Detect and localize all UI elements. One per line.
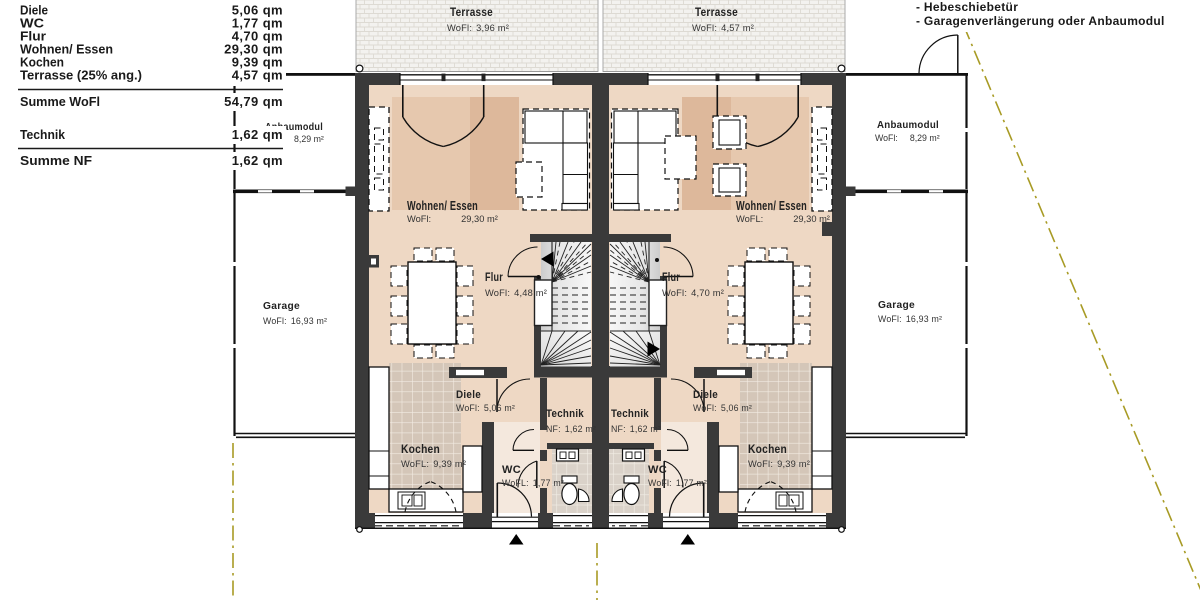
- svg-text:Technik: Technik: [546, 408, 585, 420]
- svg-text:WoFL:1,77 m²: WoFL:1,77 m²: [502, 478, 564, 488]
- svg-text:Anbaumodul: Anbaumodul: [877, 119, 939, 131]
- svg-text:WoFl:16,93 m²: WoFl:16,93 m²: [263, 316, 327, 326]
- svg-text:WoFl:3,96 m²: WoFl:3,96 m²: [447, 23, 509, 33]
- svg-text:WC: WC: [502, 464, 521, 476]
- svg-text:Wohnen/ Essen: Wohnen/ Essen: [407, 199, 478, 213]
- svg-text:Terrasse: Terrasse: [695, 7, 738, 19]
- svg-text:- Garagenverlängerung oder Anb: - Garagenverlängerung oder Anbaumodul: [916, 14, 1165, 28]
- svg-text:Diele: Diele: [693, 389, 718, 401]
- svg-text:Diele: Diele: [456, 389, 481, 401]
- svg-text:Garage: Garage: [263, 300, 300, 312]
- svg-text:Garage: Garage: [878, 299, 915, 311]
- svg-text:54,79 qm: 54,79 qm: [224, 94, 283, 109]
- svg-text:Kochen: Kochen: [401, 442, 440, 456]
- svg-text:1,62 qm: 1,62 qm: [232, 127, 283, 142]
- svg-text:Flur: Flur: [485, 272, 503, 284]
- svg-text:WoFl:5,06 m²: WoFl:5,06 m²: [693, 403, 752, 413]
- svg-text:Technik: Technik: [20, 127, 66, 142]
- svg-text:WoFl:9,39 m²: WoFl:9,39 m²: [748, 459, 810, 469]
- svg-text:- Hebeschiebetür: - Hebeschiebetür: [916, 0, 1018, 14]
- svg-text:4,57 qm: 4,57 qm: [232, 68, 283, 83]
- svg-text:Kochen: Kochen: [748, 442, 787, 456]
- svg-text:WoFl:4,70 m²: WoFl:4,70 m²: [662, 288, 724, 298]
- svg-text:WoFl:1,77 m²: WoFl:1,77 m²: [648, 478, 707, 488]
- svg-text:WoFl:4,57 m²: WoFl:4,57 m²: [692, 23, 754, 33]
- svg-text:Wohnen/ Essen: Wohnen/ Essen: [736, 199, 807, 213]
- svg-text:WoFl:4,48 m²: WoFl:4,48 m²: [485, 288, 547, 298]
- svg-text:Terrasse (25% ang.): Terrasse (25% ang.): [20, 68, 142, 83]
- svg-text:NF:1,62 m²: NF:1,62 m²: [611, 424, 661, 434]
- svg-text:Summe WoFl: Summe WoFl: [20, 94, 100, 109]
- svg-text:Flur: Flur: [662, 272, 680, 284]
- svg-text:WoFL:9,39 m²: WoFL:9,39 m²: [401, 459, 466, 469]
- svg-text:WoFl:5,06 m²: WoFl:5,06 m²: [456, 403, 515, 413]
- svg-text:WC: WC: [648, 464, 667, 476]
- svg-text:WoFl:16,93 m²: WoFl:16,93 m²: [878, 314, 942, 324]
- svg-text:Technik: Technik: [611, 408, 650, 420]
- svg-text:Summe NF: Summe NF: [20, 153, 92, 168]
- svg-text:1,62 qm: 1,62 qm: [232, 153, 283, 168]
- svg-text:NF:1,62 m²: NF:1,62 m²: [546, 424, 596, 434]
- svg-text:Terrasse: Terrasse: [450, 7, 493, 19]
